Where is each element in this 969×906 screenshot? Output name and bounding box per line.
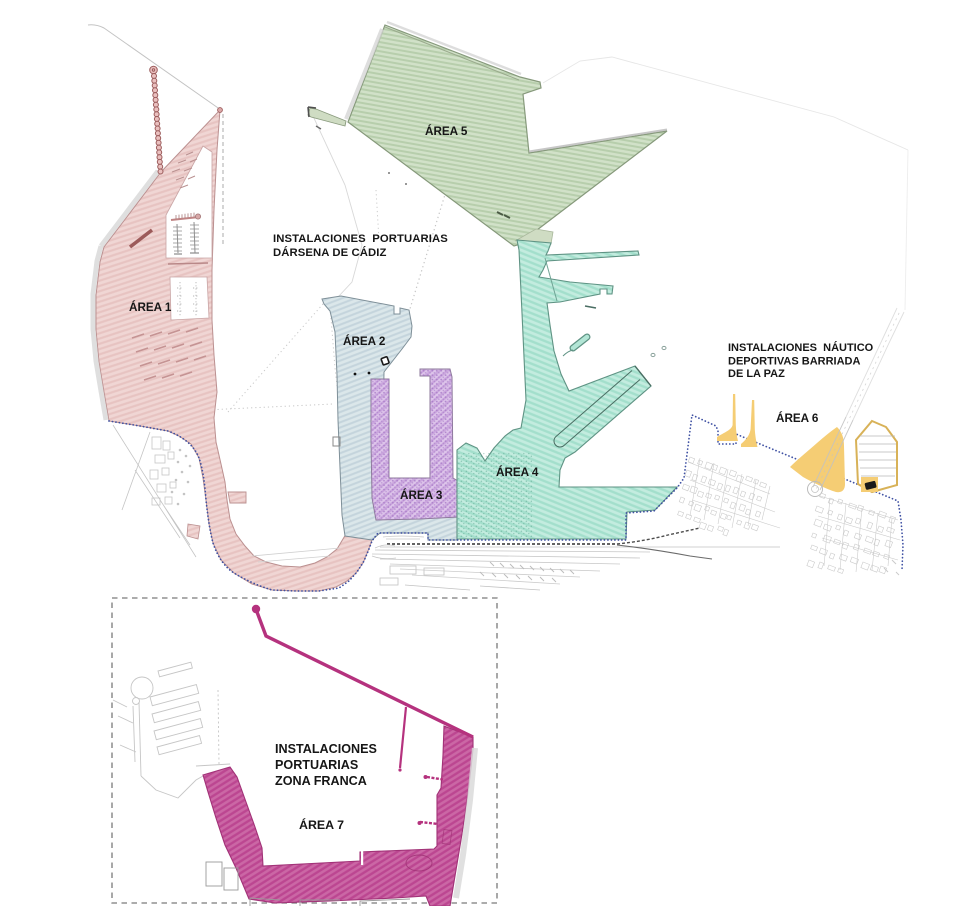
svg-text:DE LA PAZ: DE LA PAZ	[728, 368, 785, 380]
svg-text:ÁREA 7: ÁREA 7	[299, 817, 344, 832]
svg-text:ÁREA 5: ÁREA 5	[425, 125, 468, 138]
svg-text:ZONA FRANCA: ZONA FRANCA	[275, 774, 367, 788]
svg-text:INSTALACIONES: INSTALACIONES	[275, 742, 377, 756]
svg-text:DÁRSENA DE CÁDIZ: DÁRSENA DE CÁDIZ	[273, 246, 387, 259]
svg-text:INSTALACIONES NÁUTICO: INSTALACIONES NÁUTICO	[728, 341, 874, 354]
svg-text:ÁREA 4: ÁREA 4	[496, 466, 539, 479]
svg-text:ÁREA 1: ÁREA 1	[129, 301, 172, 314]
svg-text:PORTUARIAS: PORTUARIAS	[275, 758, 358, 772]
svg-text:ÁREA 2: ÁREA 2	[343, 335, 386, 348]
svg-text:ÁREA 6: ÁREA 6	[776, 412, 819, 425]
svg-text:DEPORTIVAS BARRIADA: DEPORTIVAS BARRIADA	[728, 356, 860, 368]
svg-text:INSTALACIONES PORTUARIAS: INSTALACIONES PORTUARIAS	[273, 233, 448, 245]
svg-text:ÁREA 3: ÁREA 3	[400, 489, 443, 502]
